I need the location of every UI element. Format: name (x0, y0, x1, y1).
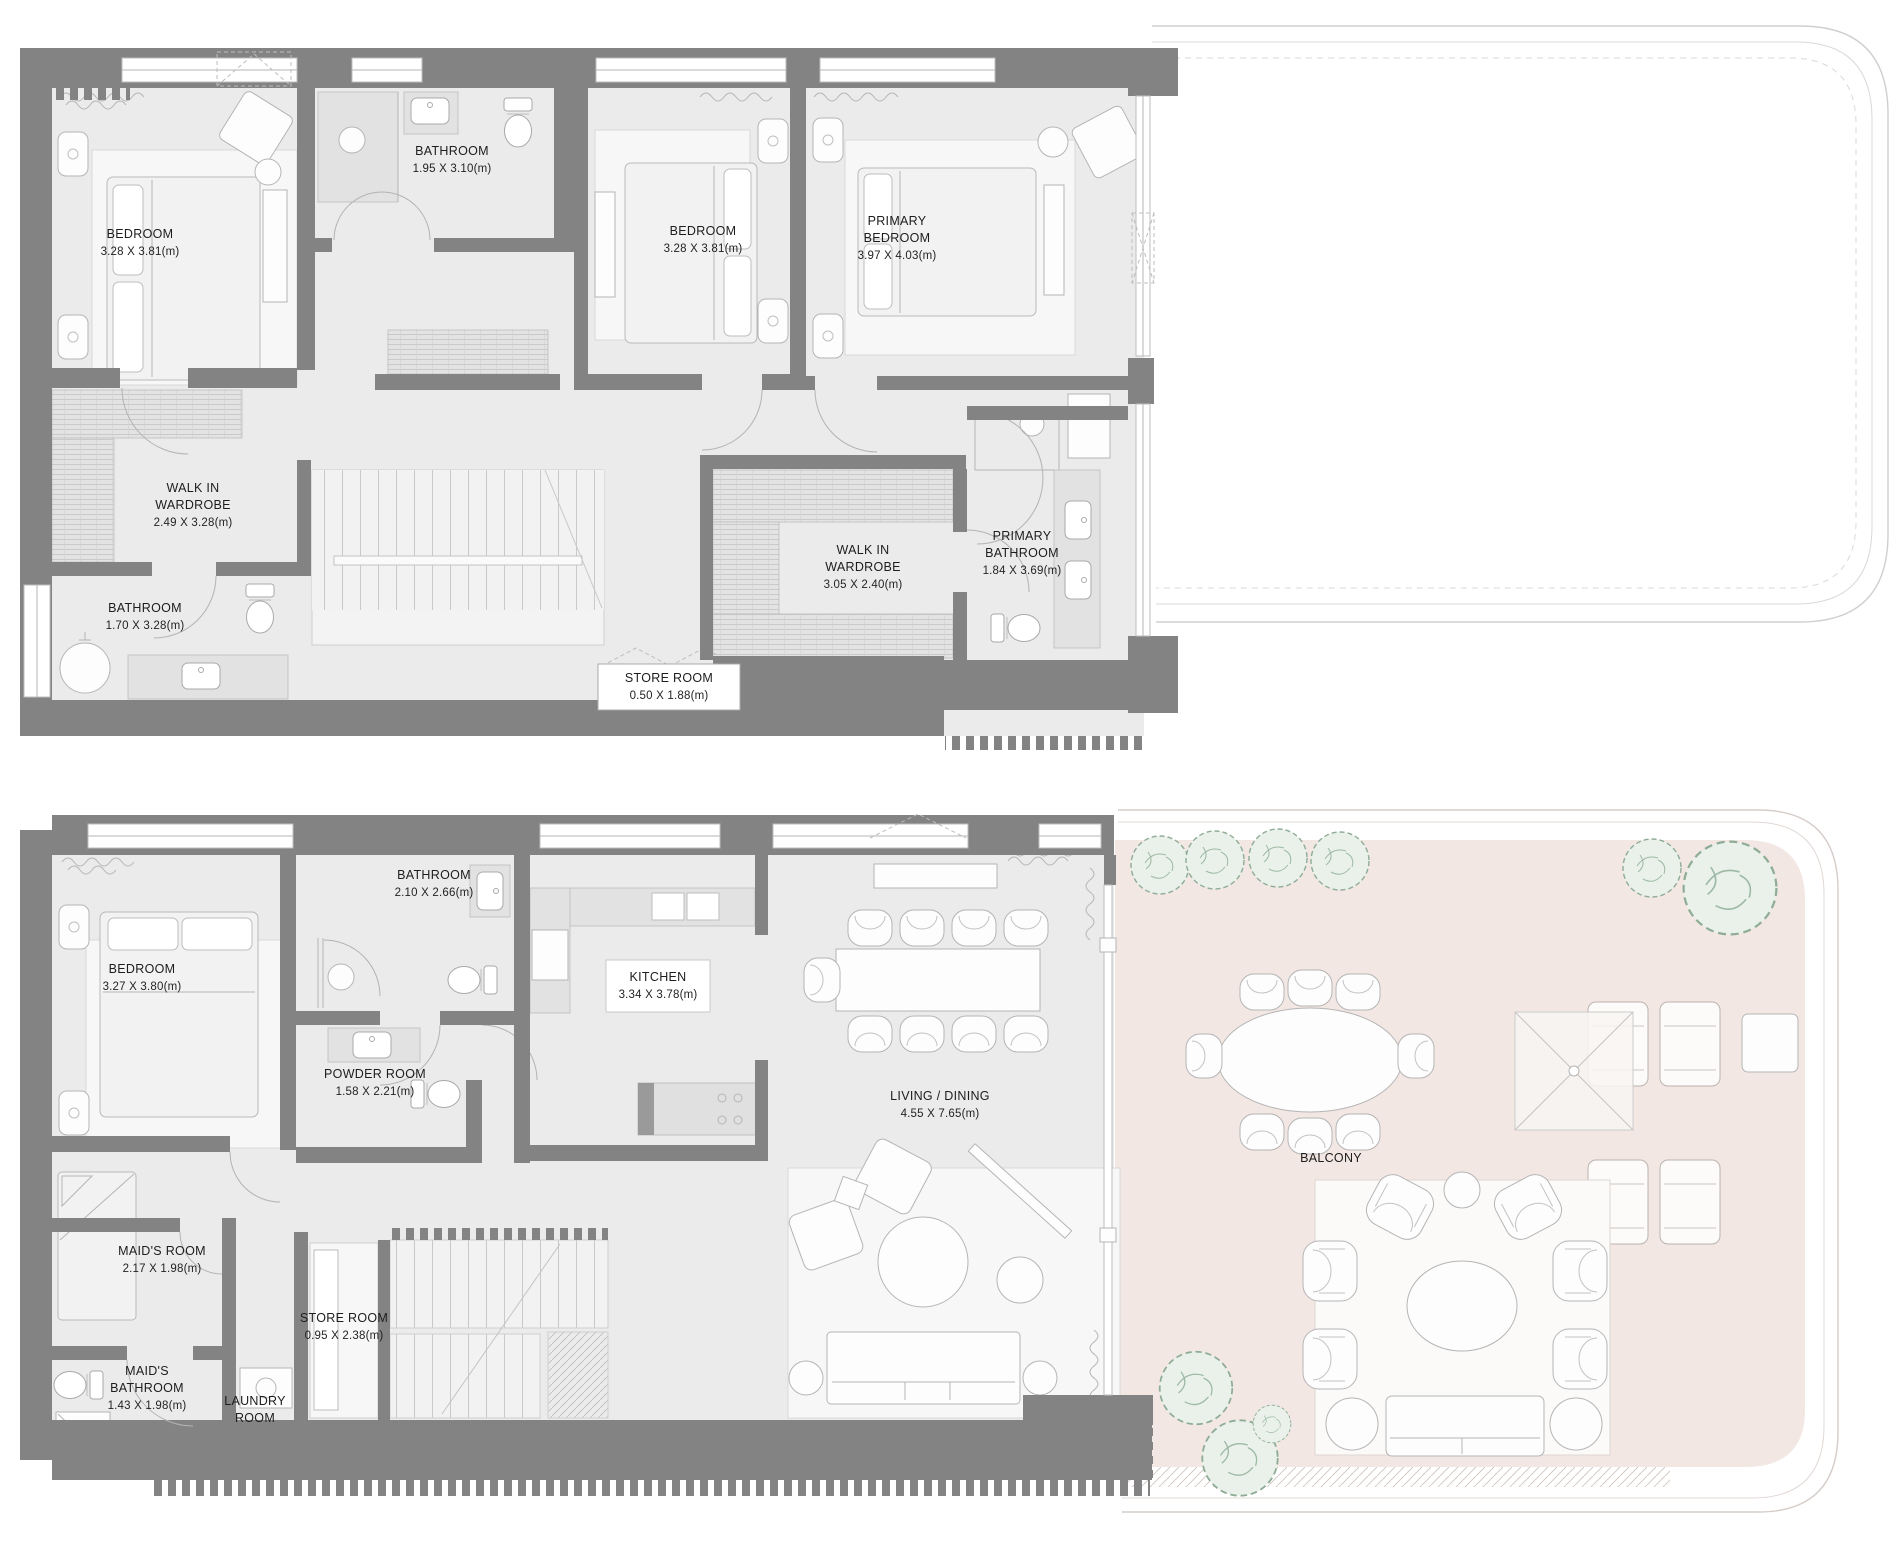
label-primary-bedroom: PRIMARY (868, 214, 927, 228)
label-upper-store-room-dims: 0.50 X 1.88(m) (630, 690, 709, 702)
armchair-icon (1553, 1329, 1607, 1389)
sideboard-icon (874, 864, 997, 888)
chair-icon (952, 910, 996, 946)
upper-floor-plan: BEDROOM 3.28 X 3.81(m) BATHROOM 1.95 X 3… (20, 26, 1888, 750)
sofa-icon (1386, 1396, 1544, 1456)
sink-icon (353, 1032, 391, 1058)
side-table-icon (1326, 1398, 1378, 1450)
label-upper-bathroom-2: BATHROOM (108, 601, 182, 615)
armchair-icon (1303, 1329, 1357, 1389)
label-primary-bedroom-2: BEDROOM (864, 231, 931, 245)
fridge-icon (532, 930, 568, 980)
label-lower-store-room: STORE ROOM (300, 1311, 388, 1325)
label-maids-bathroom-2: BATHROOM (110, 1381, 184, 1395)
chair-icon (900, 1016, 944, 1052)
chair-icon (952, 1016, 996, 1052)
cabinet-icon (1068, 394, 1110, 458)
sofa-icon (827, 1332, 1020, 1404)
chair-icon (848, 910, 892, 946)
chair-icon (1004, 1016, 1048, 1052)
sink-icon (328, 964, 354, 990)
lower-floor-plan: BEDROOM 3.27 X 3.80(m) BATHROOM 2.10 X 2… (20, 810, 1838, 1512)
tree-icon (1186, 831, 1244, 889)
chair-icon (1288, 970, 1332, 1006)
nightstand-icon (758, 119, 788, 163)
dresser-icon (595, 192, 615, 297)
dining-table-icon (836, 949, 1040, 1011)
tree-icon (1311, 832, 1369, 890)
label-wardrobe-2-dims: 3.05 X 2.40(m) (824, 579, 903, 591)
side-table-icon (997, 1257, 1043, 1303)
dresser-icon (263, 190, 287, 302)
toilet-icon (991, 614, 1040, 642)
label-upper-bedroom-2-dims: 3.28 X 3.81(m) (664, 243, 743, 255)
label-kitchen: KITCHEN (630, 970, 687, 984)
label-primary-bathroom-dims: 1.84 X 3.69(m) (983, 565, 1062, 577)
tree-icon (1253, 1405, 1291, 1443)
tree-icon (1249, 829, 1307, 887)
side-table-icon (255, 159, 281, 185)
bathtub-icon (60, 643, 110, 693)
label-kitchen-dims: 3.34 X 3.78(m) (619, 989, 698, 1001)
chair-icon (1240, 1114, 1284, 1150)
outdoor-table-icon (1742, 1014, 1798, 1072)
chair-icon (1186, 1034, 1222, 1078)
nightstand-icon (813, 118, 843, 162)
tree-icon (1684, 842, 1777, 935)
label-primary-bathroom-2: BATHROOM (985, 546, 1059, 560)
label-living-dining-dims: 4.55 X 7.65(m) (901, 1108, 980, 1120)
label-wardrobe-1: WALK IN (166, 481, 219, 495)
lounger-icon (1660, 1002, 1720, 1086)
sink-icon (182, 663, 220, 689)
side-table-icon (1550, 1398, 1602, 1450)
label-wardrobe-2: WALK IN (836, 543, 889, 557)
label-lower-bedroom: BEDROOM (109, 962, 176, 976)
stairs-icon (312, 470, 604, 645)
label-upper-bathroom-2-dims: 1.70 X 3.28(m) (106, 620, 185, 632)
tree-icon (1160, 1352, 1233, 1425)
side-table-icon (1023, 1361, 1057, 1395)
label-wardrobe-1-dims: 2.49 X 3.28(m) (154, 517, 233, 529)
label-living-dining: LIVING / DINING (890, 1089, 990, 1103)
label-upper-bathroom-1-dims: 1.95 X 3.10(m) (413, 163, 492, 175)
shower-icon (339, 127, 365, 153)
label-upper-bedroom-2: BEDROOM (670, 224, 737, 238)
label-upper-bathroom-1: BATHROOM (415, 144, 489, 158)
chair-icon (848, 1016, 892, 1052)
terrace-outline (1152, 26, 1888, 622)
label-wardrobe-2-2: WARDROBE (825, 560, 901, 574)
label-primary-bedroom-dims: 3.97 X 4.03(m) (858, 250, 937, 262)
nightstand-icon (758, 299, 788, 343)
label-maids-bathroom: MAID'S (125, 1364, 169, 1378)
chair-icon (1004, 910, 1048, 946)
label-powder-room-dims: 1.58 X 2.21(m) (336, 1086, 415, 1098)
tree-icon (1131, 836, 1189, 894)
chair-icon (804, 958, 840, 1002)
chair-icon (1336, 974, 1380, 1010)
label-upper-bedroom-1: BEDROOM (107, 227, 174, 241)
toilet-icon (54, 1371, 103, 1399)
toilet-icon (504, 98, 532, 147)
label-lower-store-room-dims: 0.95 X 2.38(m) (305, 1330, 384, 1342)
sink-icon (411, 98, 449, 124)
floor-plan-sheet: BEDROOM 3.28 X 3.81(m) BATHROOM 1.95 X 3… (0, 0, 1899, 1550)
side-table-icon (1038, 127, 1068, 157)
label-upper-bedroom-1-dims: 3.28 X 3.81(m) (101, 246, 180, 258)
toilet-icon (411, 1080, 460, 1108)
label-upper-store-room: STORE ROOM (625, 671, 713, 685)
chair-icon (1288, 1118, 1332, 1154)
label-laundry-room: LAUNDRY (224, 1394, 286, 1408)
floor-plan-drawing: BEDROOM 3.28 X 3.81(m) BATHROOM 1.95 X 3… (0, 0, 1899, 1550)
armchair-icon (1303, 1241, 1357, 1301)
sink-icon (1065, 501, 1091, 539)
nightstand-icon (813, 314, 843, 358)
balcony-glazing (1104, 885, 1112, 1395)
label-primary-bathroom: PRIMARY (993, 529, 1052, 543)
label-lower-bathroom: BATHROOM (397, 868, 471, 882)
kitchen-label-box (606, 960, 710, 1012)
chair-icon (1398, 1034, 1434, 1078)
chair-icon (1336, 1114, 1380, 1150)
toilet-icon (246, 584, 274, 633)
label-maids-bathroom-dims: 1.43 X 1.98(m) (108, 1400, 187, 1412)
nightstand-icon (58, 132, 88, 176)
stairs-icon (390, 1228, 608, 1418)
armchair-icon (1553, 1241, 1607, 1301)
label-laundry-room-2: ROOM (235, 1411, 275, 1425)
side-table-icon (1444, 1172, 1480, 1208)
nightstand-icon (58, 315, 88, 359)
label-lower-bathroom-dims: 2.10 X 2.66(m) (395, 887, 474, 899)
label-powder-room: POWDER ROOM (324, 1067, 426, 1081)
label-maids-room-dims: 2.17 X 1.98(m) (123, 1263, 202, 1275)
chair-icon (900, 910, 944, 946)
kitchen-island-icon (638, 1083, 758, 1135)
chair-icon (1240, 974, 1284, 1010)
toilet-icon (448, 966, 497, 994)
outdoor-dining-table-icon (1218, 1008, 1402, 1112)
sink-icon (1065, 561, 1091, 599)
label-maids-room: MAID'S ROOM (118, 1244, 206, 1258)
lounger-icon (1660, 1160, 1720, 1244)
nightstand-icon (59, 905, 89, 949)
sink-icon (477, 872, 503, 910)
bench-icon (1044, 185, 1064, 295)
coffee-table-icon (878, 1217, 968, 1307)
side-table-icon (789, 1361, 823, 1395)
label-balcony: BALCONY (1300, 1151, 1362, 1165)
coffee-table-icon (1407, 1261, 1517, 1351)
tree-icon (1623, 839, 1681, 897)
label-wardrobe-1-2: WARDROBE (155, 498, 231, 512)
nightstand-icon (59, 1091, 89, 1135)
label-lower-bedroom-dims: 3.27 X 3.80(m) (103, 981, 182, 993)
